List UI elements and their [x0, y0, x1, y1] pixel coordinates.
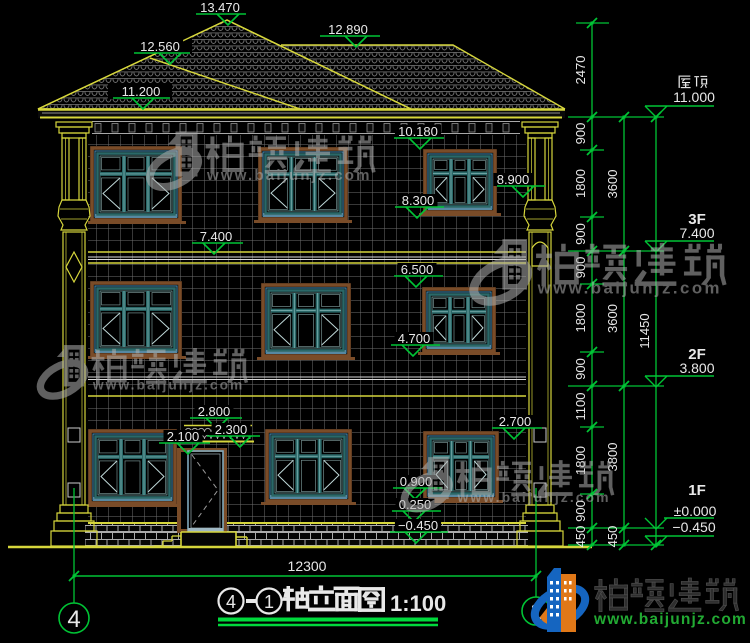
svg-text:12.890: 12.890 [328, 22, 368, 37]
svg-text:3600: 3600 [605, 304, 620, 333]
svg-text:1: 1 [264, 592, 274, 612]
svg-text:2.300: 2.300 [215, 422, 248, 437]
svg-text:3600: 3600 [605, 170, 620, 199]
svg-text:10.180: 10.180 [398, 124, 438, 139]
svg-text:1800: 1800 [573, 446, 588, 475]
svg-text:1100: 1100 [573, 393, 588, 421]
svg-text:450: 450 [605, 526, 620, 548]
svg-text:7.400: 7.400 [200, 229, 233, 244]
svg-text:2.800: 2.800 [198, 404, 231, 419]
svg-text:900: 900 [573, 358, 588, 380]
svg-text:12300: 12300 [288, 558, 327, 574]
svg-text:900: 900 [573, 223, 588, 245]
svg-text:1800: 1800 [573, 169, 588, 198]
svg-text:2.700: 2.700 [499, 414, 532, 429]
svg-text:13.470: 13.470 [200, 0, 240, 15]
svg-text:8.300: 8.300 [402, 193, 435, 208]
svg-text:4: 4 [226, 592, 236, 612]
svg-text:4.700: 4.700 [398, 331, 431, 346]
svg-text:6.500: 6.500 [401, 262, 434, 277]
svg-text:www.baijunjz.com: www.baijunjz.com [593, 611, 747, 628]
svg-text:−0.450: −0.450 [398, 518, 438, 533]
svg-text:1F: 1F [688, 482, 706, 499]
svg-text:12.560: 12.560 [140, 39, 180, 54]
svg-text:4: 4 [67, 606, 80, 633]
svg-text:−0.450: −0.450 [672, 519, 715, 535]
svg-text:450: 450 [573, 526, 588, 548]
svg-text:11.000: 11.000 [673, 89, 715, 105]
svg-text:1800: 1800 [573, 304, 588, 333]
svg-text:2470: 2470 [573, 56, 588, 85]
svg-text:1:100: 1:100 [390, 591, 446, 616]
svg-text:±0.000: ±0.000 [674, 503, 717, 519]
svg-text:11.200: 11.200 [122, 84, 161, 99]
svg-text:7.400: 7.400 [679, 225, 714, 241]
svg-text:3.800: 3.800 [679, 360, 714, 376]
svg-text:2.100: 2.100 [167, 429, 200, 444]
svg-text:8.900: 8.900 [497, 172, 530, 187]
svg-text:900: 900 [573, 123, 588, 145]
svg-text:11450: 11450 [637, 313, 652, 348]
